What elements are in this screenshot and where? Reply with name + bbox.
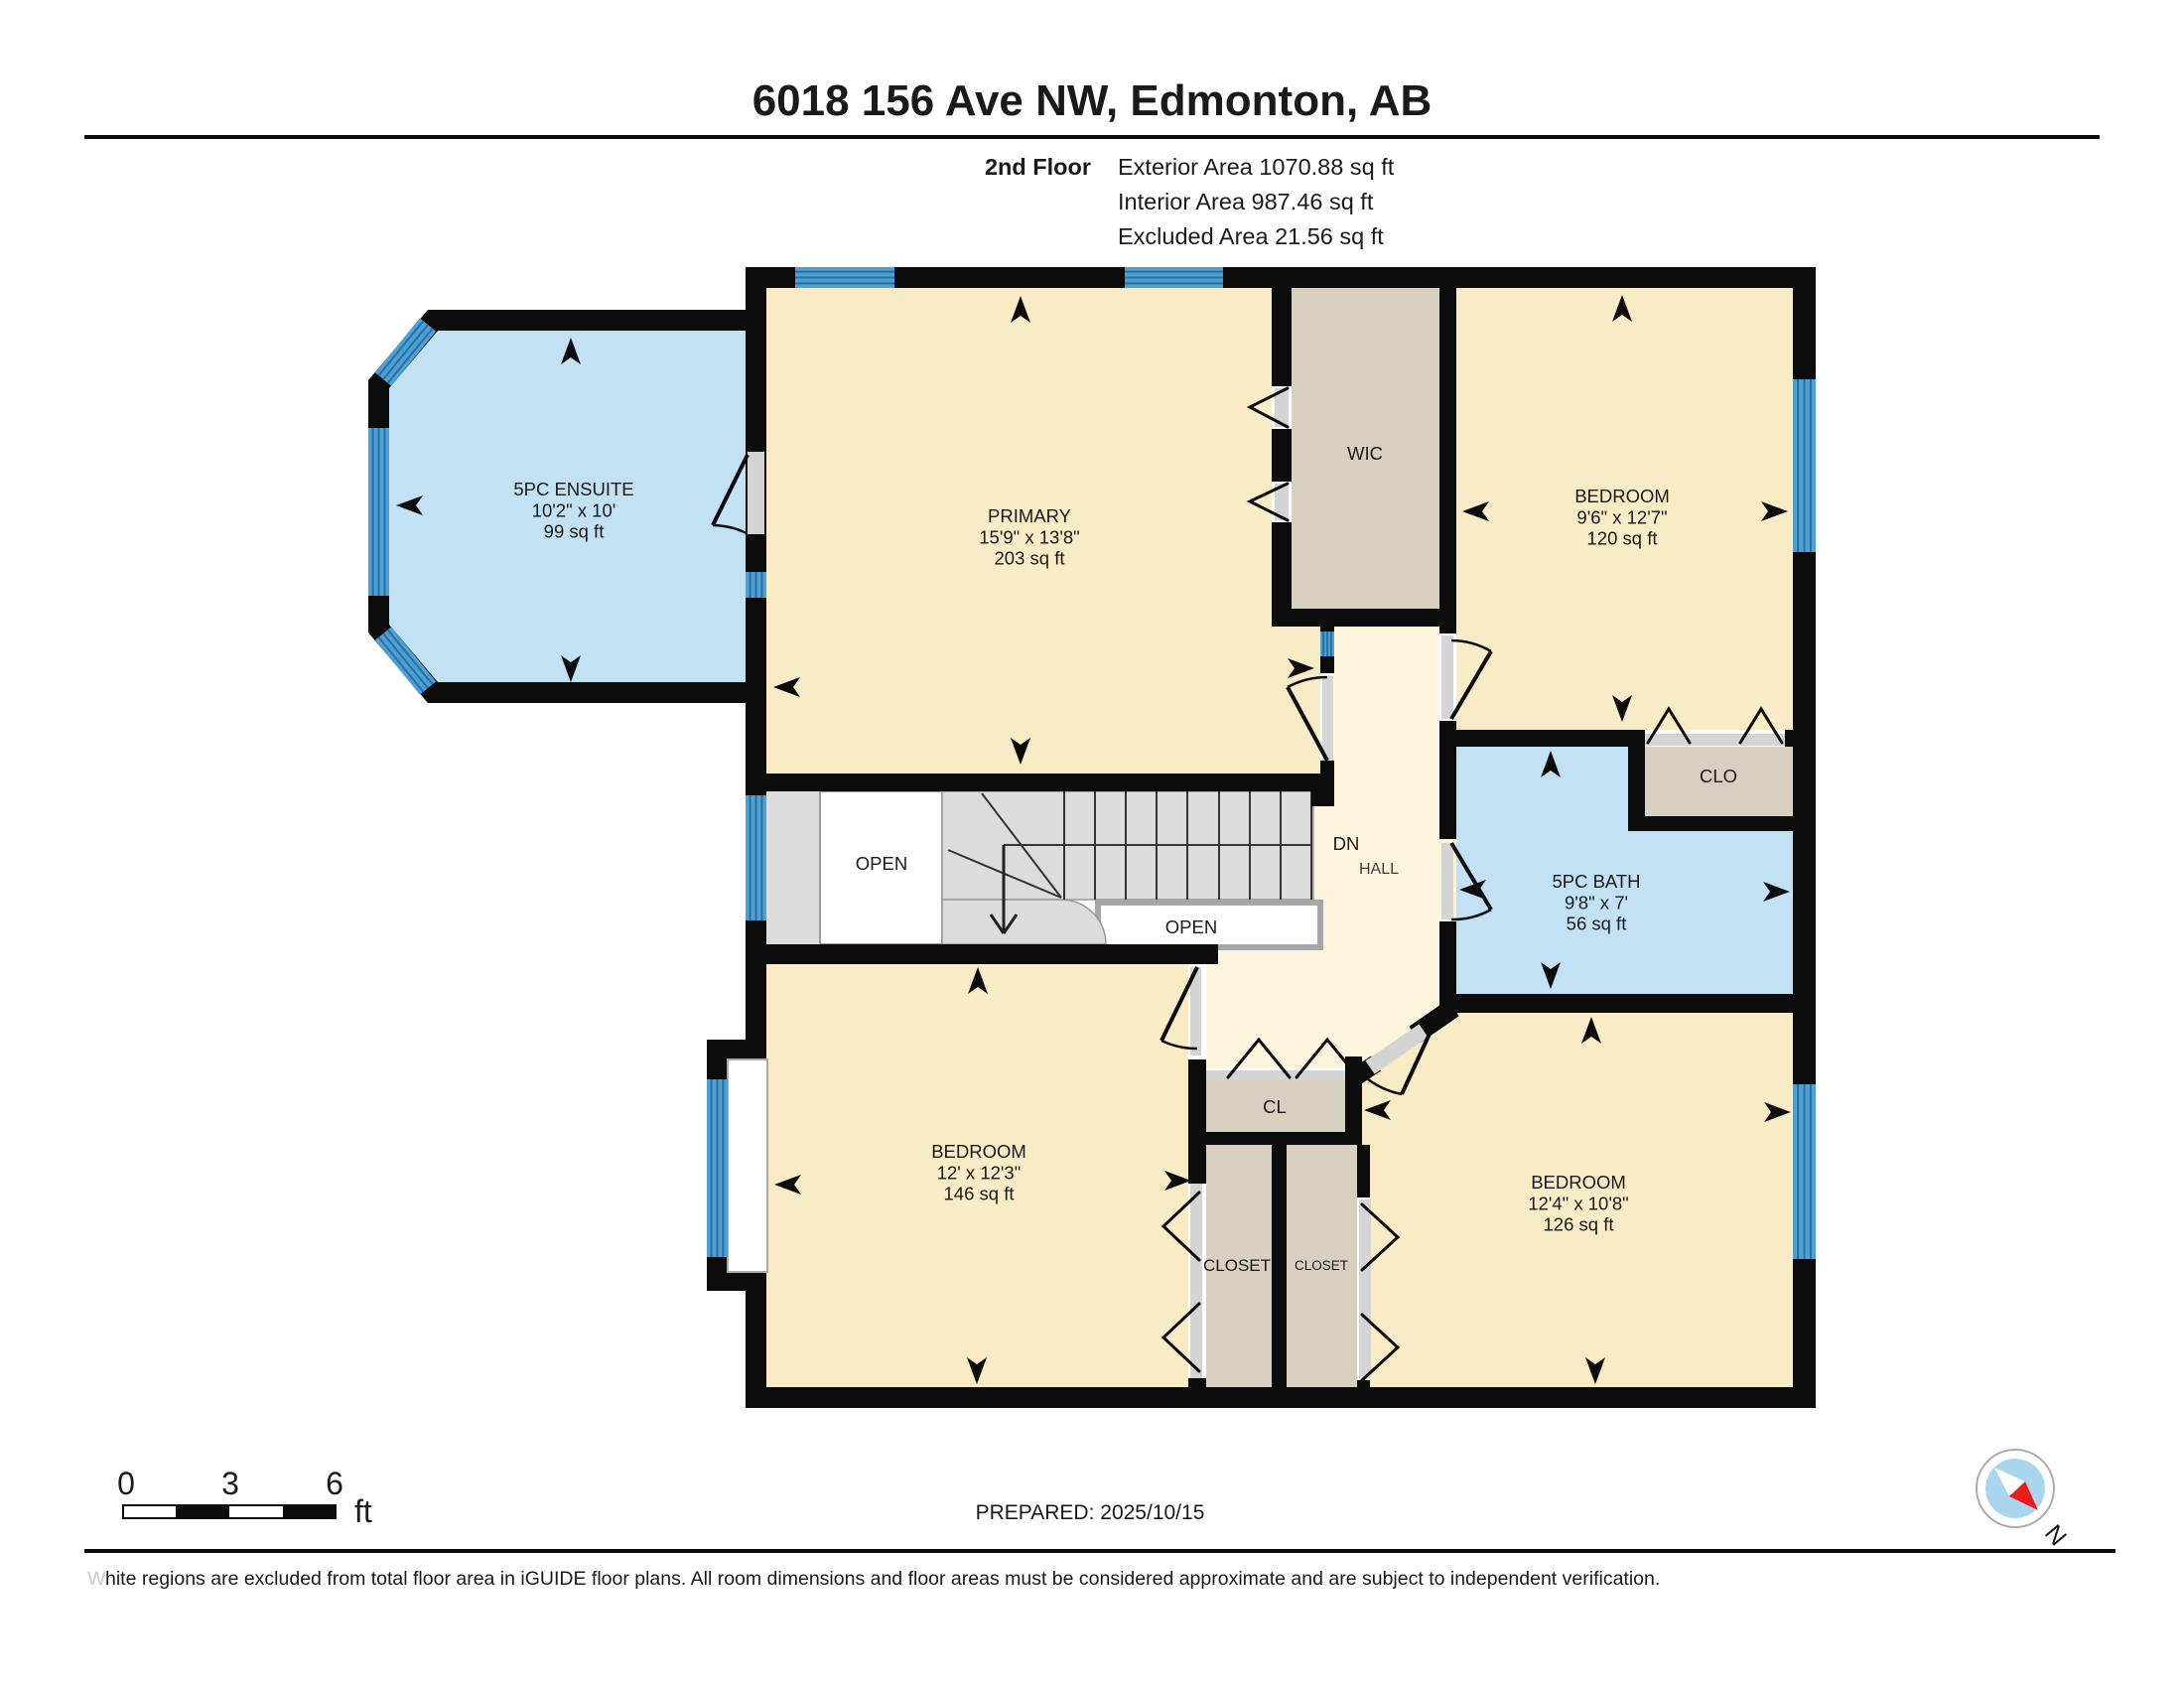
- svg-text:WIC: WIC: [1347, 443, 1383, 464]
- svg-text:99 sq ft: 99 sq ft: [544, 521, 605, 542]
- svg-text:10'2" x 10': 10'2" x 10': [532, 499, 616, 520]
- svg-text:5PC ENSUITE: 5PC ENSUITE: [513, 479, 633, 499]
- svg-text:56 sq ft: 56 sq ft: [1567, 914, 1627, 934]
- svg-text:146 sq ft: 146 sq ft: [944, 1184, 1015, 1204]
- svg-text:CL: CL: [1263, 1096, 1287, 1117]
- svg-text:6018 156 Ave NW, Edmonton, AB: 6018 156 Ave NW, Edmonton, AB: [752, 76, 1433, 125]
- svg-text:DN: DN: [1333, 833, 1360, 854]
- svg-text:Excluded Area 21.56 sq ft: Excluded Area 21.56 sq ft: [1118, 223, 1384, 249]
- svg-text:5PC BATH: 5PC BATH: [1552, 871, 1640, 892]
- svg-text:CLOSET: CLOSET: [1295, 1258, 1348, 1273]
- svg-text:9'8" x 7': 9'8" x 7': [1565, 892, 1628, 913]
- svg-text:N: N: [2039, 1519, 2072, 1551]
- svg-text:Exterior Area 1070.88 sq ft: Exterior Area 1070.88 sq ft: [1118, 154, 1395, 180]
- svg-text:6: 6: [326, 1466, 343, 1501]
- svg-text:Interior Area 987.46 sq ft: Interior Area 987.46 sq ft: [1118, 189, 1374, 214]
- svg-text:3: 3: [221, 1466, 239, 1501]
- svg-text:BEDROOM: BEDROOM: [1531, 1172, 1626, 1193]
- svg-text:BEDROOM: BEDROOM: [931, 1141, 1026, 1162]
- svg-text:126 sq ft: 126 sq ft: [1544, 1214, 1614, 1235]
- svg-text:PRIMARY: PRIMARY: [988, 505, 1071, 526]
- svg-text:hite regions are excluded from: hite regions are excluded from total flo…: [105, 1568, 1660, 1590]
- svg-text:W: W: [87, 1568, 106, 1590]
- svg-text:PREPARED: 2025/10/15: PREPARED: 2025/10/15: [976, 1501, 1205, 1524]
- svg-text:12' x 12'3": 12' x 12'3": [937, 1162, 1022, 1183]
- svg-text:HALL: HALL: [1359, 861, 1399, 878]
- svg-text:2nd Floor: 2nd Floor: [985, 154, 1091, 180]
- svg-text:CLO: CLO: [1700, 766, 1737, 786]
- svg-text:15'9" x 13'8": 15'9" x 13'8": [979, 526, 1079, 547]
- svg-text:OPEN: OPEN: [856, 853, 907, 874]
- svg-text:203 sq ft: 203 sq ft: [995, 548, 1065, 569]
- svg-text:0: 0: [117, 1466, 135, 1501]
- svg-text:ft: ft: [354, 1493, 372, 1529]
- svg-text:120 sq ft: 120 sq ft: [1587, 528, 1658, 549]
- svg-text:9'6" x 12'7": 9'6" x 12'7": [1576, 506, 1667, 527]
- svg-text:CLOSET: CLOSET: [1203, 1256, 1271, 1275]
- svg-text:12'4" x 10'8": 12'4" x 10'8": [1528, 1193, 1628, 1213]
- svg-text:BEDROOM: BEDROOM: [1574, 486, 1670, 506]
- svg-text:OPEN: OPEN: [1165, 916, 1217, 937]
